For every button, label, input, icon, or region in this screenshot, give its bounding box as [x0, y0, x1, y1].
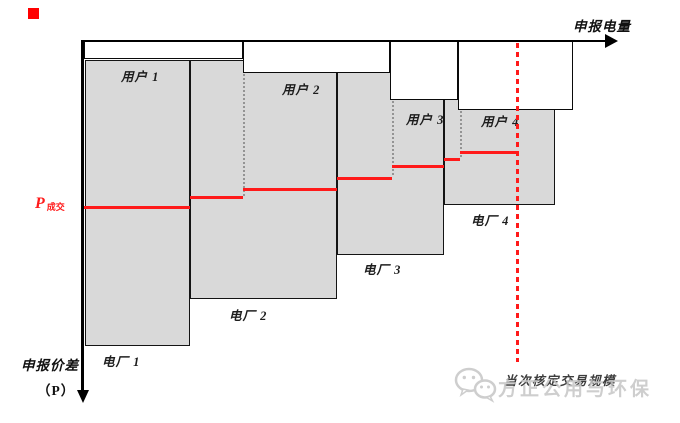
supply-label-3: 电厂 3: [363, 259, 401, 278]
demand-box-1: [84, 41, 243, 59]
y-axis-line: [81, 40, 84, 392]
watermark: 方正公用与环保: [452, 362, 662, 404]
y-axis-unit-label: （P）: [37, 379, 75, 399]
wechat-icon: [454, 366, 498, 404]
clearing-price-symbol: P: [35, 195, 45, 212]
price-segment-4: [337, 177, 392, 180]
red-square-marker: [28, 8, 39, 19]
supply-label-2: 电厂 2: [229, 305, 267, 324]
supply-label-1: 电厂 1: [102, 351, 140, 370]
x-axis-arrow-icon: [605, 34, 618, 48]
x-axis-label: 申报电量: [573, 15, 631, 35]
demand-box-3: [390, 41, 458, 100]
price-segment-3: [243, 188, 337, 191]
y-axis-arrow-icon: [77, 390, 89, 403]
demand-label-4: 用户 4: [481, 111, 519, 130]
match-guide-1: [243, 74, 245, 196]
supply-label-4: 电厂 4: [471, 210, 509, 229]
price-segment-2: [190, 196, 243, 199]
price-segment-7: [460, 151, 519, 154]
demand-box-2: [243, 41, 390, 73]
x-axis-line: [82, 40, 607, 42]
price-segment-1: [84, 206, 190, 209]
diagram-canvas: 申报电量 申报价差 （P） P成交 用户 1用户 2用户 3用户 4电厂 1电厂…: [0, 0, 680, 423]
demand-label-2: 用户 2: [282, 79, 320, 98]
watermark-text: 方正公用与环保: [498, 374, 652, 401]
demand-label-3: 用户 3: [406, 109, 444, 128]
demand-label-1: 用户 1: [121, 66, 159, 85]
cleared-volume-dashed-line: [516, 43, 519, 362]
clearing-price-subscript: 成交: [47, 202, 65, 212]
price-segment-6: [444, 158, 460, 161]
y-axis-label: 申报价差: [21, 354, 79, 374]
clearing-price-label: P成交: [35, 195, 65, 213]
price-segment-5: [392, 165, 444, 168]
supply-block-1: [85, 60, 190, 346]
